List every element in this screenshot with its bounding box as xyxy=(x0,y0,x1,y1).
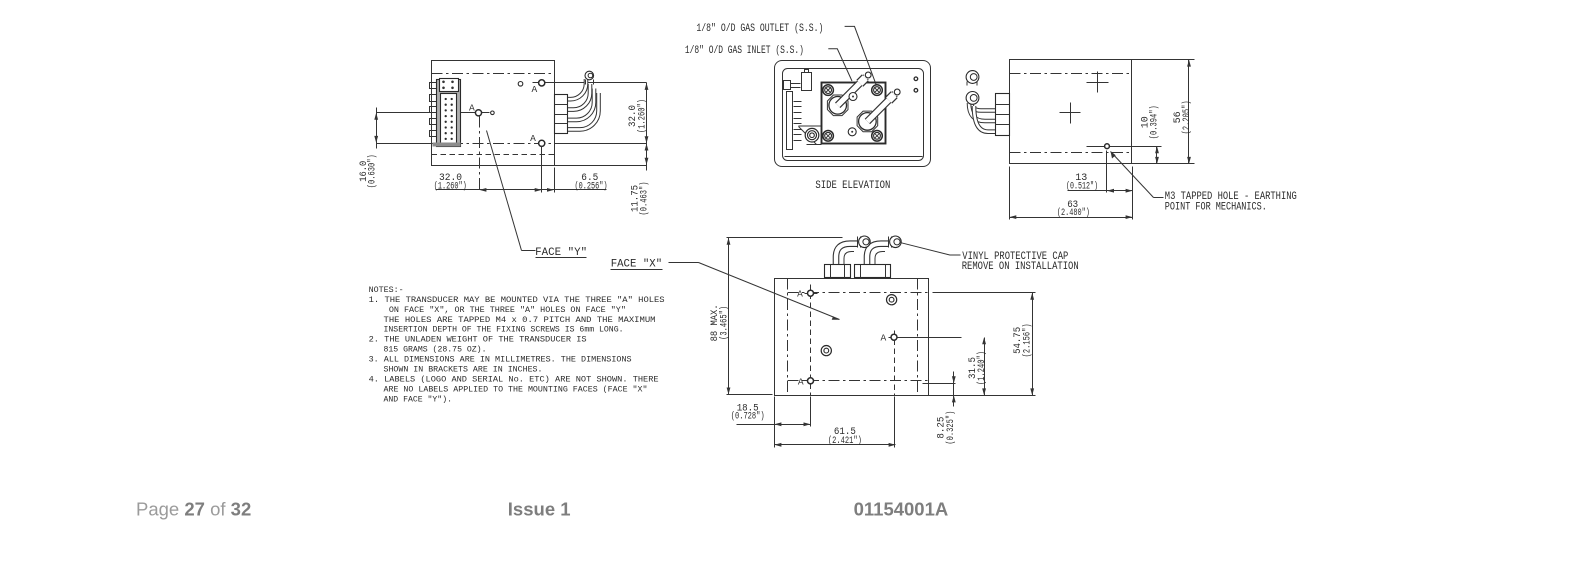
svg-text:ARE NO LABELS APPLIED TO THE M: ARE NO LABELS APPLIED TO THE MOUNTING FA… xyxy=(384,384,648,394)
svg-text:INSERTION DEPTH OF THE FIXING: INSERTION DEPTH OF THE FIXING SCREWS IS … xyxy=(384,325,624,335)
svg-text:(3.465″): (3.465″) xyxy=(719,306,731,340)
svg-text:(0.394″): (0.394″) xyxy=(1148,105,1160,139)
svg-text:SHOWN IN BRACKETS ARE IN INCHE: SHOWN IN BRACKETS ARE IN INCHES. xyxy=(384,365,543,375)
svg-text:A: A xyxy=(530,133,536,144)
svg-text:THE HOLES ARE TAPPED M4 x 0.7: THE HOLES ARE TAPPED M4 x 0.7 PITCH AND … xyxy=(384,315,656,325)
svg-text:Issue 1: Issue 1 xyxy=(508,499,571,520)
svg-text:(2.205″): (2.205″) xyxy=(1181,100,1193,134)
svg-text:01154001A: 01154001A xyxy=(854,499,949,520)
svg-text:A: A xyxy=(881,333,887,344)
svg-text:1/8″ O/D GAS OUTLET (S.S.): 1/8″ O/D GAS OUTLET (S.S.) xyxy=(696,23,823,35)
svg-text:(0.728″): (0.728″) xyxy=(731,411,765,423)
svg-text:(2.156″): (2.156″) xyxy=(1021,323,1033,357)
svg-text:(1.260″): (1.260″) xyxy=(434,180,467,192)
svg-text:1/8″ O/D GAS INLET (S.S.): 1/8″ O/D GAS INLET (S.S.) xyxy=(685,45,804,57)
svg-text:(2.421″): (2.421″) xyxy=(828,435,862,447)
svg-text:A: A xyxy=(797,289,803,300)
svg-text:A: A xyxy=(469,102,475,113)
svg-text:815 GRAMS (28.75 OZ).: 815 GRAMS (28.75 OZ). xyxy=(384,345,487,355)
svg-text:POINT FOR MECHANICS.: POINT FOR MECHANICS. xyxy=(1165,202,1267,214)
svg-text:(0.512″): (0.512″) xyxy=(1066,181,1098,193)
svg-text:(2.480″): (2.480″) xyxy=(1057,207,1090,219)
svg-text:(1.240″): (1.240″) xyxy=(976,351,988,385)
svg-text:4. LABELS (LOGO AND SERIAL No.: 4. LABELS (LOGO AND SERIAL No. ETC) ARE … xyxy=(369,374,659,384)
svg-text:Page 27 of 32: Page 27 of 32 xyxy=(136,499,251,520)
svg-text:A: A xyxy=(798,376,804,387)
svg-text:REMOVE ON INSTALLATION: REMOVE ON INSTALLATION xyxy=(962,261,1079,273)
svg-text:(0.463″): (0.463″) xyxy=(639,182,651,216)
svg-text:(0.630″): (0.630″) xyxy=(367,154,379,188)
svg-text:A: A xyxy=(532,84,538,95)
svg-text:(0.256″): (0.256″) xyxy=(575,180,608,192)
svg-text:SIDE ELEVATION: SIDE ELEVATION xyxy=(815,180,890,192)
svg-text:3. ALL DIMENSIONS ARE IN MILLI: 3. ALL DIMENSIONS ARE IN MILLIMETRES. TH… xyxy=(369,355,632,365)
svg-text:NOTES:-: NOTES:- xyxy=(369,285,404,295)
svg-text:ON FACE ″X″, OR THE THREE ″A″: ON FACE ″X″, OR THE THREE ″A″ HOLES ON F… xyxy=(389,305,626,315)
svg-text:FACE ″X″: FACE ″X″ xyxy=(611,259,663,271)
svg-text:(0.325″): (0.325″) xyxy=(945,411,957,445)
svg-text:AND FACE ″Y″).: AND FACE ″Y″). xyxy=(384,394,453,404)
svg-text:1. THE TRANSDUCER MAY BE MOUNT: 1. THE TRANSDUCER MAY BE MOUNTED VIA THE… xyxy=(369,295,665,305)
svg-text:2. THE UNLADEN WEIGHT OF THE T: 2. THE UNLADEN WEIGHT OF THE TRANSDUCER … xyxy=(369,335,587,345)
svg-text:(1.260″): (1.260″) xyxy=(636,99,648,133)
